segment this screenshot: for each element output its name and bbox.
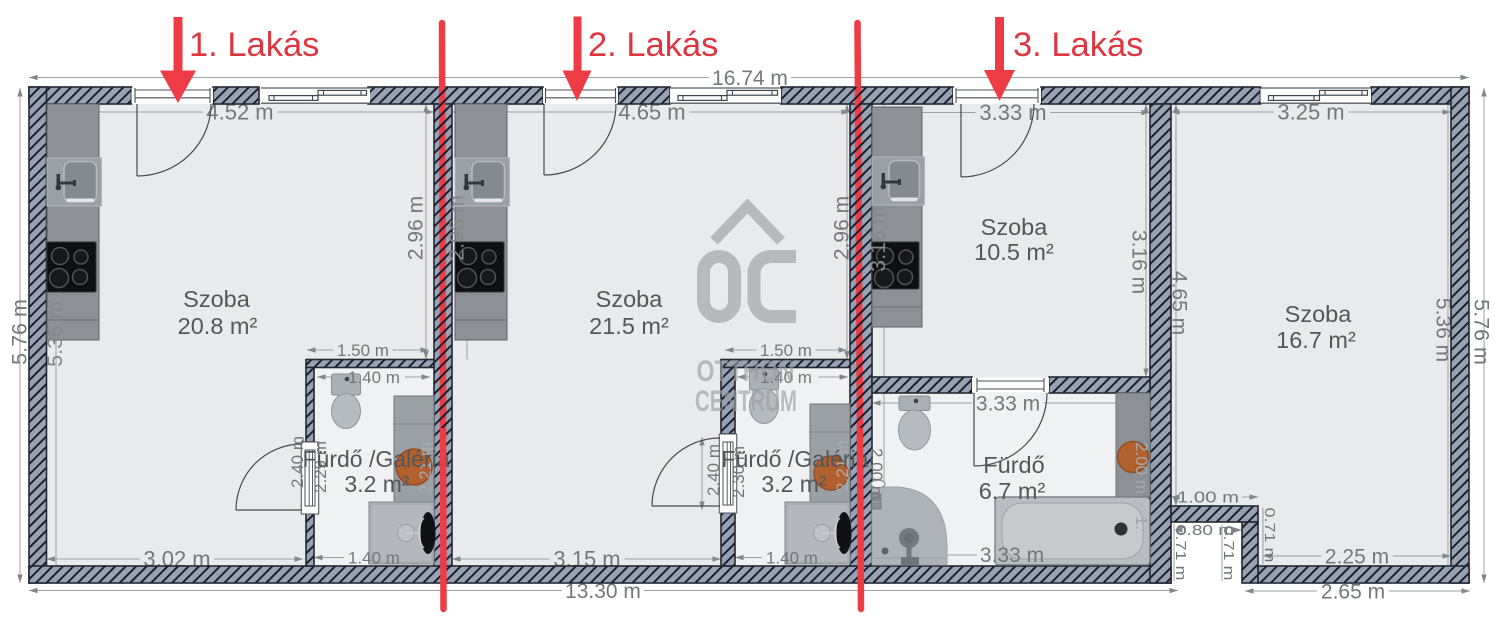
svg-text:6.7 m²: 6.7 m² [979,478,1046,504]
svg-text:Fürdő /Galéria: Fürdő /Galéria [302,446,449,472]
svg-text:Fürdő /Galéria: Fürdő /Galéria [721,446,868,472]
svg-text:Szoba: Szoba [1285,301,1353,327]
svg-text:20.8 m²: 20.8 m² [178,313,258,339]
svg-text:1.50 m: 1.50 m [337,341,389,360]
svg-text:3.33 m: 3.33 m [980,544,1044,567]
svg-text:1.00 m: 1.00 m [1177,490,1239,507]
svg-text:10.5 m²: 10.5 m² [974,239,1054,265]
svg-text:3.2 m²: 3.2 m² [344,471,410,497]
svg-text:Szoba: Szoba [596,286,664,312]
svg-text:3. Lakás: 3. Lakás [1013,26,1143,64]
svg-text:1.40 m: 1.40 m [348,549,400,568]
svg-text:5.76 m: 5.76 m [1470,299,1494,365]
svg-text:5.76 m: 5.76 m [8,299,32,365]
svg-text:Fürdő: Fürdő [983,452,1044,478]
svg-text:2.40 m: 2.40 m [704,444,723,496]
svg-text:3.2 m²: 3.2 m² [761,471,827,497]
svg-text:16.74 m: 16.74 m [712,67,788,90]
svg-text:0.71 m: 0.71 m [1172,526,1188,581]
svg-text:1.40 m: 1.40 m [348,368,400,387]
svg-text:1.: 1. [1132,516,1151,530]
svg-text:2.96 m: 2.96 m [445,195,469,261]
svg-text:2.25 m: 2.25 m [1325,545,1389,568]
svg-text:1. Lakás: 1. Lakás [189,26,319,64]
svg-text:Szoba: Szoba [183,286,251,312]
svg-text:3.33 m: 3.33 m [976,392,1040,415]
svg-text:2.00 m: 2.00 m [867,448,886,500]
svg-text:0.71 m: 0.71 m [1220,526,1236,581]
svg-text:2.00 m: 2.00 m [1132,442,1151,494]
svg-text:2.96 m: 2.96 m [404,196,427,260]
svg-text:21.5 m²: 21.5 m² [589,313,669,339]
svg-text:CENTRUM: CENTRUM [695,385,797,418]
svg-text:Szoba: Szoba [981,214,1049,240]
svg-text:2. Lakás: 2. Lakás [588,26,718,64]
svg-text:5.36 m: 5.36 m [43,301,67,367]
svg-text:2.65 m: 2.65 m [1321,580,1385,603]
svg-text:3.33 m: 3.33 m [979,100,1046,125]
svg-text:1.40 m: 1.40 m [766,549,818,568]
svg-text:0.71 m: 0.71 m [1261,508,1277,563]
svg-text:3.16 m: 3.16 m [1128,230,1151,294]
svg-text:OTTHON: OTTHON [697,355,795,388]
svg-text:3.16 m: 3.16 m [866,206,890,272]
svg-text:16.7 m²: 16.7 m² [1276,327,1356,353]
